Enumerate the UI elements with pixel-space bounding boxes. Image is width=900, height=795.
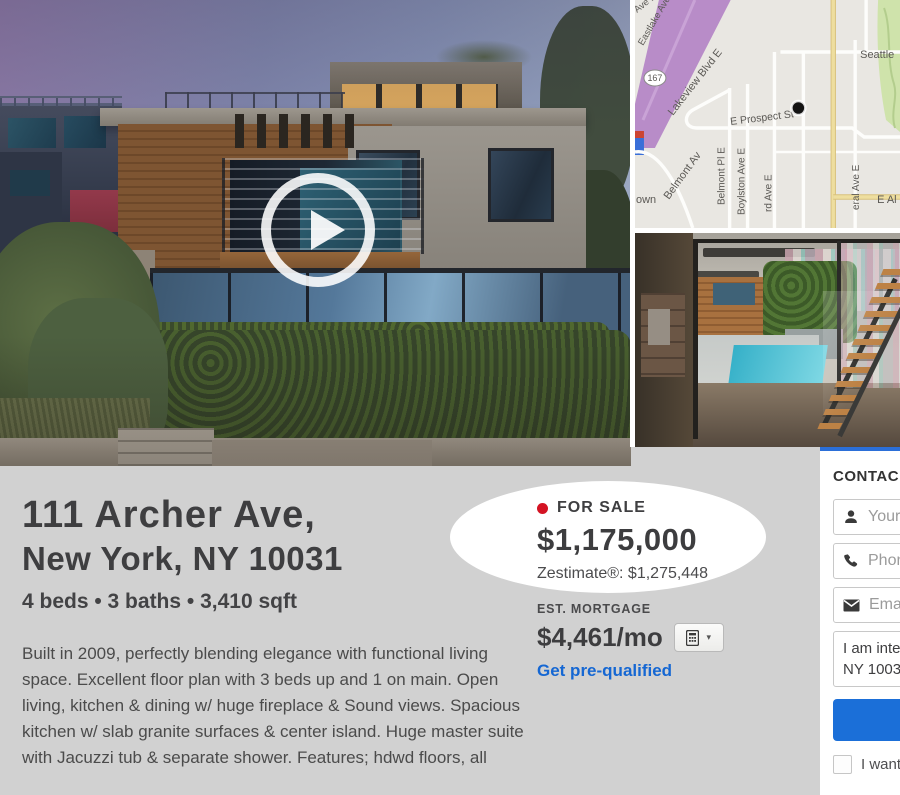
- get-prequalified-link[interactable]: Get pre-qualified: [537, 661, 724, 681]
- interior-photo[interactable]: [635, 233, 900, 447]
- caret-down-icon: ▾: [706, 633, 711, 642]
- address-line1: 111 Archer Ave,: [22, 492, 343, 538]
- property-facts: 4 beds • 3 baths • 3,410 sqft: [22, 590, 343, 614]
- contact-panel: CONTAC Your n Phone Email I am intere NY…: [820, 447, 900, 795]
- mortgage-label: EST. MORTGAGE: [537, 602, 724, 616]
- zestimate-value: Zestimate®: $1,275,448: [537, 565, 708, 583]
- message-line2: NY 10031.: [843, 659, 900, 680]
- play-icon: [311, 210, 345, 250]
- for-sale-dot-icon: [537, 503, 548, 514]
- street-label: Belmont Pl E: [717, 147, 728, 205]
- contact-header: CONTAC: [833, 468, 900, 485]
- street-label: Boylston Ave E: [737, 148, 748, 215]
- mortgage-row: $4,461/mo ▾: [537, 622, 724, 653]
- fence-window: [713, 283, 755, 305]
- main-photo[interactable]: [0, 0, 631, 466]
- street-label: rd Ave E: [764, 174, 775, 212]
- mortgage-calculator-button[interactable]: ▾: [674, 623, 724, 652]
- route-shield-label: 167: [647, 73, 662, 83]
- person-icon: [843, 509, 859, 525]
- play-button[interactable]: [261, 173, 375, 287]
- calculator-icon: [686, 630, 699, 646]
- financing-option-row: I want f: [833, 755, 900, 774]
- property-description: Built in 2009, perfectly blending elegan…: [22, 641, 527, 771]
- status-row: FOR SALE: [537, 499, 708, 517]
- contact-submit-button[interactable]: [833, 699, 900, 741]
- status-badge: FOR SALE: [557, 499, 646, 517]
- email-input[interactable]: Email: [833, 587, 900, 623]
- address-block: 111 Archer Ave, New York, NY 10031 4 bed…: [22, 492, 343, 614]
- appliance: [648, 309, 670, 345]
- name-placeholder: Your n: [868, 508, 900, 526]
- property-marker-icon: [791, 101, 805, 115]
- pool: [728, 345, 828, 385]
- price-block: FOR SALE $1,175,000 Zestimate®: $1,275,4…: [537, 499, 708, 583]
- phone-placeholder: Phone: [868, 552, 900, 570]
- map-canvas: 167 Ave E Eastlake Ave Lakeview Blvd E E…: [635, 0, 900, 228]
- city-label: Seattle: [860, 49, 894, 61]
- email-icon: [843, 599, 860, 612]
- street-label: E Al: [877, 194, 896, 206]
- financing-checkbox-label: I want f: [861, 756, 900, 773]
- listing-page: 167 Ave E Eastlake Ave Lakeview Blvd E E…: [0, 0, 900, 795]
- address-line2: New York, NY 10031: [22, 538, 343, 580]
- email-placeholder: Email: [869, 596, 900, 614]
- glass-frame-left: [693, 239, 698, 439]
- freeway-sign-red: [635, 131, 644, 138]
- phone-icon: [843, 553, 859, 569]
- message-textarea[interactable]: I am intere NY 10031.: [833, 631, 900, 687]
- message-line1: I am intere: [843, 638, 900, 659]
- mortgage-amount: $4,461/mo: [537, 622, 663, 653]
- map-thumbnail[interactable]: 167 Ave E Eastlake Ave Lakeview Blvd E E…: [635, 0, 900, 228]
- name-input[interactable]: Your n: [833, 499, 900, 535]
- street-label: own: [636, 194, 656, 206]
- mortgage-block: EST. MORTGAGE $4,461/mo ▾ Get pre-qualif…: [537, 602, 724, 681]
- street-label: eral Ave E: [851, 164, 862, 210]
- glass-sheen: [823, 291, 900, 417]
- list-price: $1,175,000: [537, 522, 708, 558]
- financing-checkbox[interactable]: [833, 755, 852, 774]
- phone-input[interactable]: Phone: [833, 543, 900, 579]
